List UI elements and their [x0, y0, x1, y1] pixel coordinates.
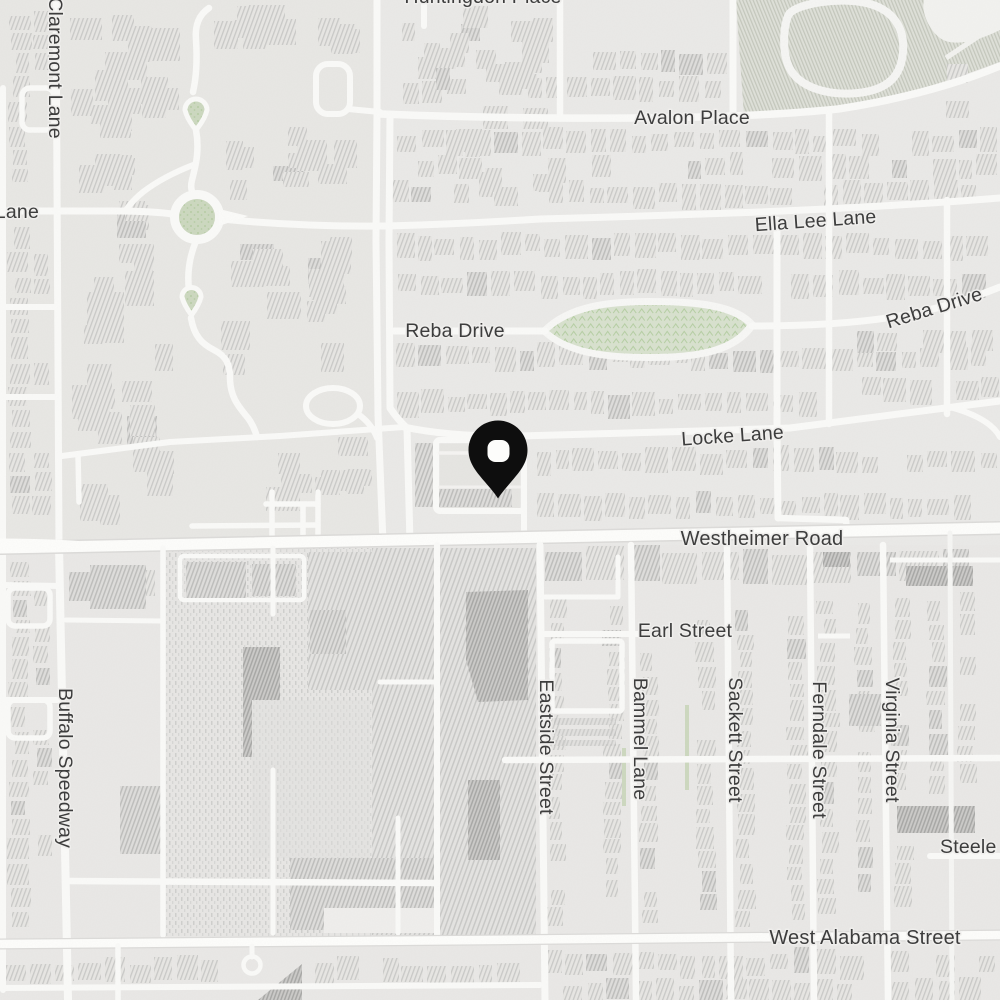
svg-text:Reba Drive: Reba Drive — [405, 320, 505, 342]
svg-text:Ella Lee Lane: Ella Lee Lane — [0, 201, 39, 223]
svg-text:Sackett Street: Sackett Street — [724, 677, 746, 803]
svg-text:Eastside Street: Eastside Street — [535, 679, 557, 815]
svg-text:Virginia Street: Virginia Street — [881, 677, 903, 803]
svg-text:Avalon Place: Avalon Place — [634, 107, 750, 129]
svg-text:Westheimer Road: Westheimer Road — [681, 528, 844, 550]
svg-text:Ferndale Street: Ferndale Street — [808, 681, 830, 819]
svg-text:Bammel Lane: Bammel Lane — [629, 678, 651, 801]
svg-text:West Alabama Street: West Alabama Street — [769, 927, 961, 949]
svg-text:Steele Street: Steele Street — [940, 836, 1000, 858]
svg-text:Claremont Lane: Claremont Lane — [44, 0, 66, 139]
svg-text:Earl Street: Earl Street — [638, 620, 733, 642]
svg-text:Huntingdon Place: Huntingdon Place — [404, 0, 561, 8]
svg-text:Buffalo Speedway: Buffalo Speedway — [54, 688, 76, 848]
